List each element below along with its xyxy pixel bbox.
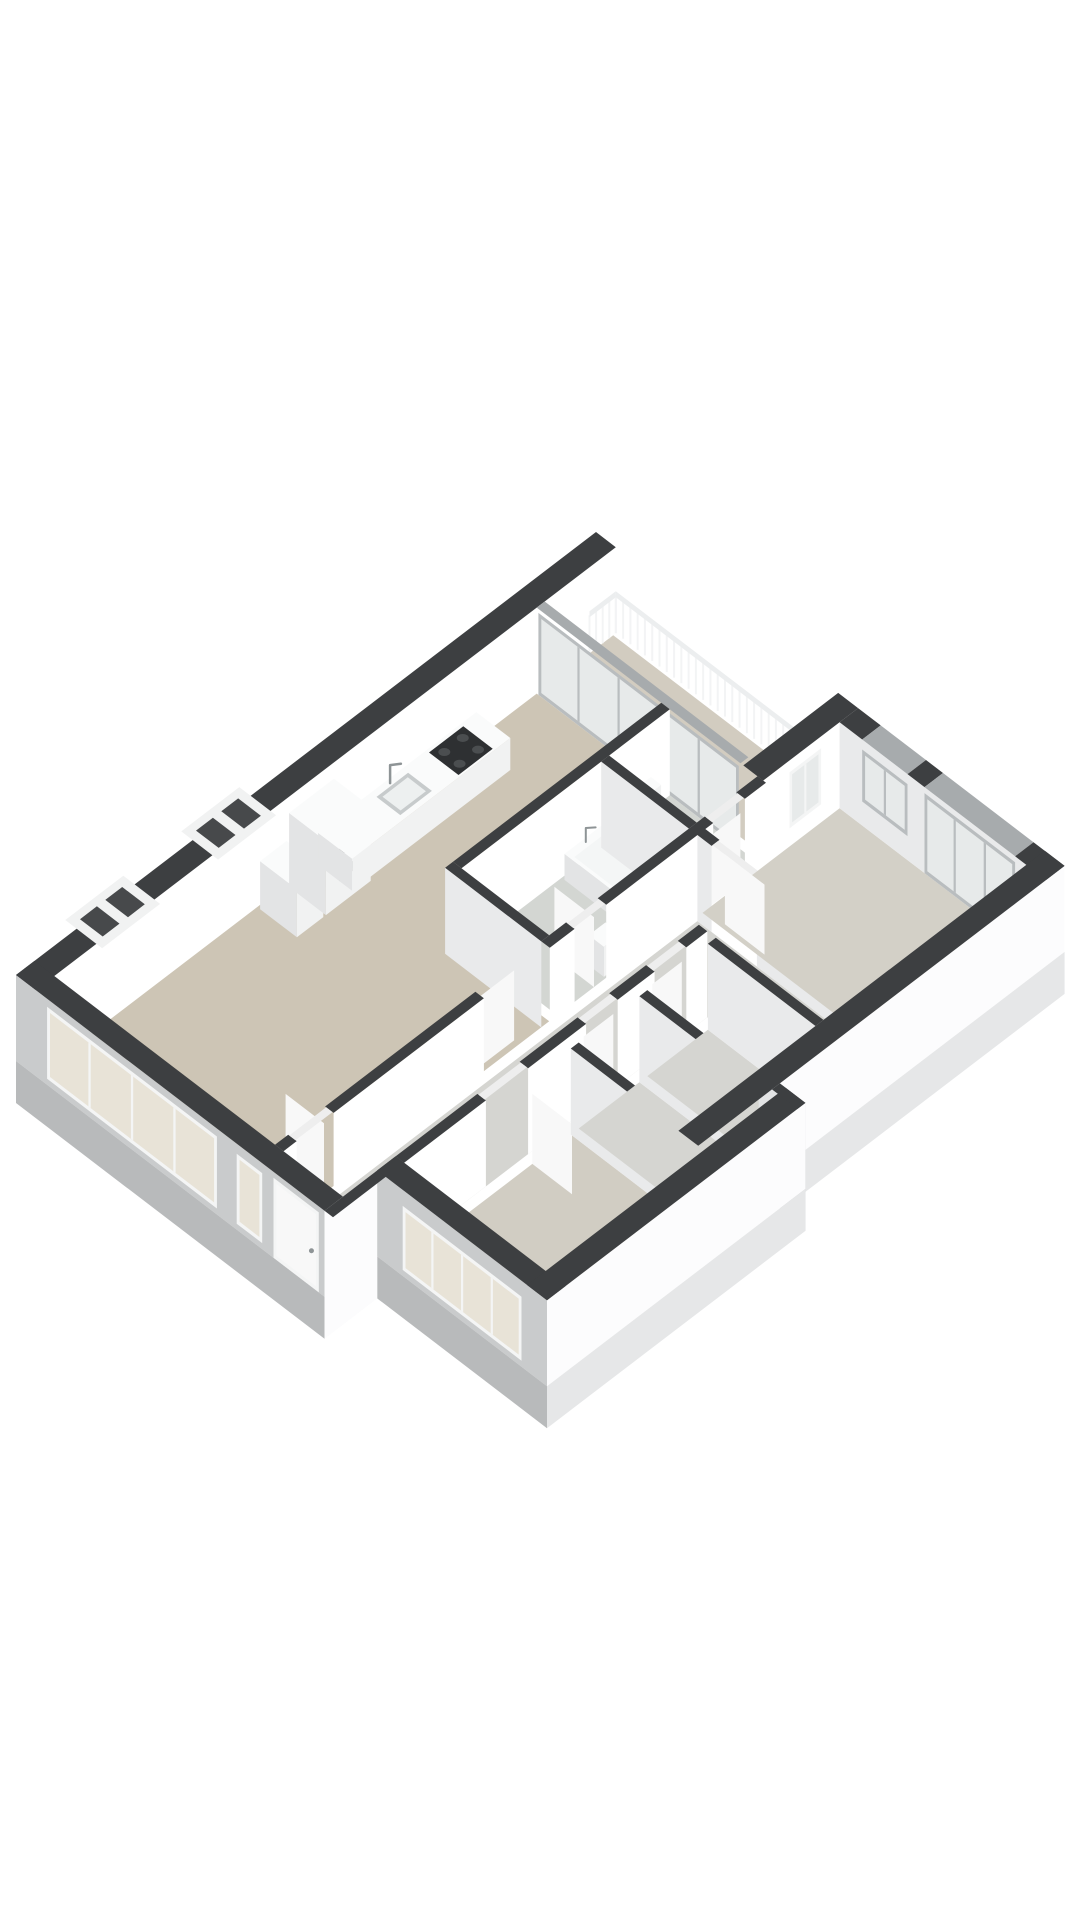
hob-burner-2 xyxy=(457,734,469,742)
balcony-glass-wall-mullion xyxy=(698,739,700,815)
bedroom-2-window-band-mullion xyxy=(431,1232,433,1290)
hob-burner-3 xyxy=(454,760,466,768)
entrance-door-handle xyxy=(309,1248,314,1253)
hob-burner-1 xyxy=(438,748,450,756)
floorplan-3d-figure xyxy=(0,0,1080,1920)
bedroom-1-nw-window-mullion xyxy=(804,764,806,814)
balcony-glass-wall-mullion xyxy=(577,647,579,723)
floorplan-page: 3D axonometric floor plan of an apartmen… xyxy=(0,0,1080,1920)
bedroom-1-ne-window-2-door-mullion xyxy=(954,819,956,893)
living-room-window-band-mullion xyxy=(131,1075,133,1141)
living-room-window-band-mullion xyxy=(88,1042,90,1108)
hob-burner-4 xyxy=(472,746,484,754)
bedroom-2-window-band-mullion xyxy=(491,1277,493,1335)
living-room-window-band-mullion xyxy=(173,1107,175,1173)
bedroom-2-window-band-mullion xyxy=(461,1255,463,1313)
bedroom-1-ne-window-1-mullion xyxy=(884,770,886,816)
floorplan-3d-render xyxy=(0,0,1080,1920)
hall-south-wall-face-4 xyxy=(686,931,707,1033)
